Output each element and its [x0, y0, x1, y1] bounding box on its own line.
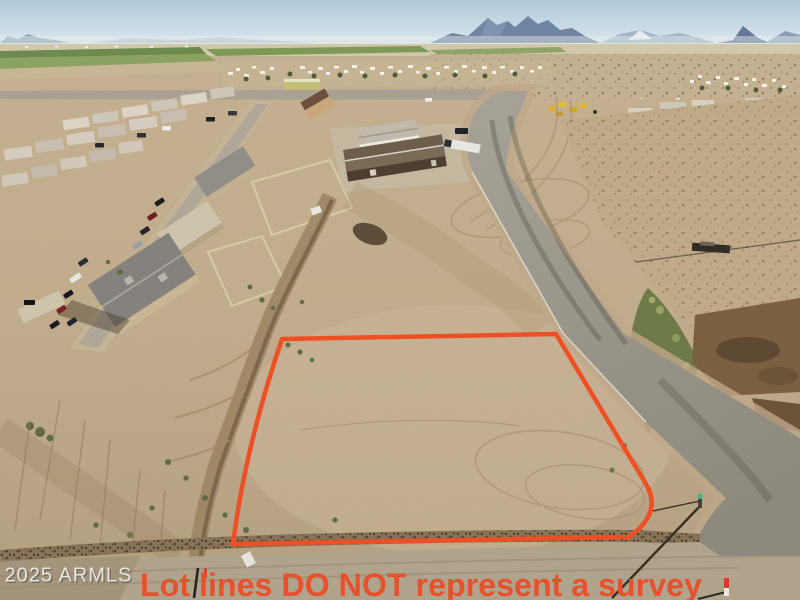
aerial-photo-canvas: 2025 ARMLS 2025 ARMLS Lot lines DO NOT r…	[0, 0, 800, 600]
aerial-photo: 2025 ARMLS 2025 ARMLS Lot lines DO NOT r…	[0, 0, 800, 600]
watermark: 2025 ARMLS 2025 ARMLS	[5, 565, 134, 589]
disclaimer-text: Lot lines DO NOT represent a survey	[140, 567, 702, 600]
photo-grain	[0, 40, 800, 600]
armls-watermark-text: 2025 ARMLS	[5, 565, 133, 587]
